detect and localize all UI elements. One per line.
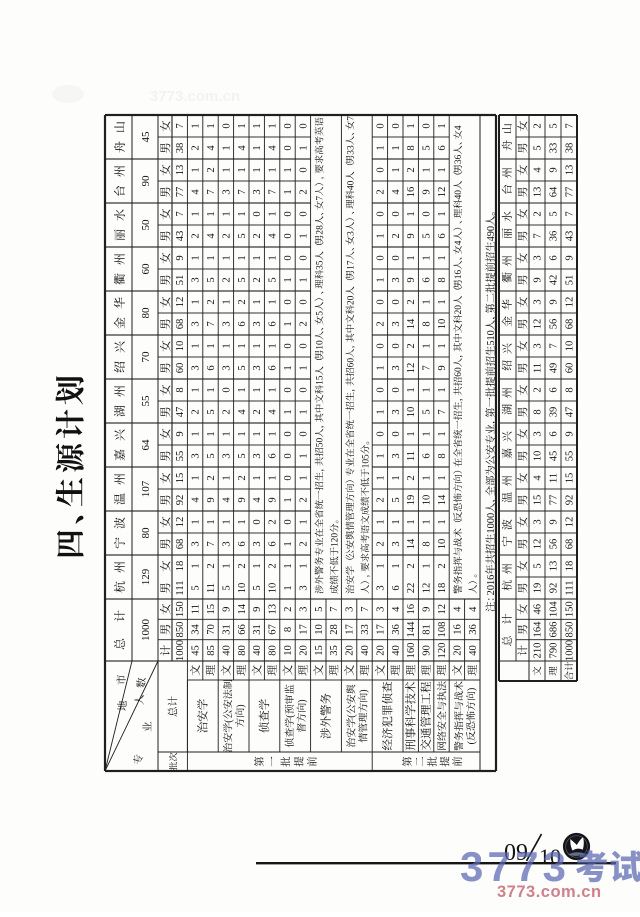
svg-text:1: 1 — [422, 255, 433, 260]
svg-text:111: 111 — [564, 580, 575, 595]
svg-text:9: 9 — [406, 233, 417, 238]
svg-text:1000: 1000 — [175, 640, 186, 661]
svg-text:144: 144 — [406, 621, 417, 638]
svg-text:3: 3 — [375, 607, 386, 612]
svg-text:2: 2 — [206, 475, 217, 480]
svg-text:9: 9 — [406, 277, 417, 282]
svg-text:4: 4 — [252, 497, 263, 503]
svg-text:9: 9 — [252, 607, 263, 612]
svg-text:60: 60 — [454, 367, 464, 377]
svg-text:9: 9 — [564, 255, 575, 260]
svg-text:2: 2 — [406, 299, 417, 304]
svg-text:1: 1 — [283, 409, 294, 414]
svg-text:77: 77 — [548, 495, 559, 506]
svg-text:1: 1 — [221, 255, 232, 260]
svg-text:1: 1 — [437, 167, 448, 172]
svg-text:33: 33 — [360, 624, 371, 635]
svg-text:92: 92 — [564, 495, 575, 506]
svg-text:10: 10 — [532, 451, 543, 462]
svg-text:0: 0 — [391, 123, 402, 128]
svg-text:3: 3 — [391, 277, 402, 282]
svg-text:1: 1 — [437, 475, 448, 480]
svg-text:6: 6 — [422, 277, 433, 282]
svg-text:1: 1 — [391, 563, 402, 568]
svg-text:7: 7 — [532, 233, 543, 238]
svg-text:5: 5 — [548, 211, 559, 216]
svg-text:36: 36 — [454, 154, 464, 164]
svg-text:1: 1 — [298, 475, 309, 480]
svg-text:22: 22 — [406, 583, 417, 594]
svg-text:1: 1 — [422, 299, 433, 304]
svg-text:4: 4 — [237, 409, 248, 415]
svg-text:5: 5 — [422, 409, 433, 414]
svg-text:28: 28 — [316, 225, 326, 235]
svg-text:1: 1 — [221, 211, 232, 216]
svg-text:50: 50 — [140, 219, 152, 231]
svg-text:55: 55 — [175, 451, 186, 462]
svg-text:47: 47 — [175, 407, 186, 418]
svg-text:14: 14 — [406, 538, 417, 549]
svg-text:3: 3 — [252, 453, 263, 458]
svg-text:80: 80 — [237, 645, 248, 656]
svg-text:1: 1 — [252, 475, 263, 480]
svg-text:77: 77 — [564, 187, 575, 198]
svg-text:0: 0 — [422, 123, 433, 128]
svg-text:7: 7 — [564, 123, 575, 128]
svg-text:2: 2 — [221, 277, 232, 282]
svg-text:3: 3 — [375, 585, 386, 590]
svg-text:1: 1 — [298, 277, 309, 282]
svg-text:2: 2 — [375, 189, 386, 194]
svg-text:11: 11 — [532, 363, 543, 373]
svg-text:0: 0 — [391, 255, 402, 260]
svg-text:1: 1 — [221, 299, 232, 304]
svg-text:1: 1 — [206, 123, 217, 128]
svg-text:3: 3 — [391, 365, 402, 370]
svg-text:7: 7 — [548, 343, 559, 348]
svg-text:3: 3 — [532, 299, 543, 304]
svg-text:20: 20 — [452, 645, 463, 656]
svg-text:16: 16 — [406, 187, 417, 198]
svg-text:1: 1 — [391, 167, 402, 172]
svg-text:68: 68 — [175, 539, 186, 550]
svg-text:4: 4 — [206, 145, 217, 151]
svg-text:7: 7 — [316, 196, 326, 201]
svg-text:11: 11 — [191, 604, 202, 614]
svg-text:1: 1 — [237, 519, 248, 524]
svg-text:9: 9 — [548, 167, 559, 172]
svg-text:): ) — [466, 688, 477, 691]
svg-text:2: 2 — [406, 343, 417, 348]
svg-text:8: 8 — [422, 541, 433, 546]
svg-text:2: 2 — [252, 233, 263, 238]
svg-text:15: 15 — [532, 495, 543, 506]
svg-text:45: 45 — [548, 451, 559, 462]
svg-text:9: 9 — [532, 277, 543, 282]
svg-text:5: 5 — [316, 311, 326, 316]
svg-text:8: 8 — [564, 387, 575, 392]
svg-text:6: 6 — [206, 365, 217, 370]
svg-text:1: 1 — [268, 255, 279, 260]
svg-text:10: 10 — [237, 583, 248, 594]
svg-text:12: 12 — [422, 583, 433, 594]
svg-text:0: 0 — [221, 387, 232, 392]
svg-text:1: 1 — [221, 431, 232, 436]
svg-text:1: 1 — [237, 431, 248, 436]
svg-text:2: 2 — [375, 321, 386, 326]
svg-text:1: 1 — [298, 563, 309, 568]
svg-text:9: 9 — [548, 299, 559, 304]
svg-text:2: 2 — [283, 607, 294, 612]
svg-text:7: 7 — [329, 607, 340, 612]
svg-text:13: 13 — [548, 561, 559, 572]
svg-text:80: 80 — [140, 527, 152, 539]
svg-text:1: 1 — [206, 255, 217, 260]
svg-text:1: 1 — [283, 541, 294, 546]
svg-text:5: 5 — [206, 453, 217, 458]
svg-text:92: 92 — [175, 495, 186, 506]
svg-text:60: 60 — [140, 263, 152, 275]
svg-text:4: 4 — [454, 240, 464, 245]
svg-text:8: 8 — [406, 145, 417, 150]
svg-text:0: 0 — [375, 299, 386, 304]
svg-text:3: 3 — [532, 343, 543, 348]
svg-text:43: 43 — [564, 231, 575, 242]
svg-text:4: 4 — [191, 189, 202, 195]
svg-text:1: 1 — [298, 519, 309, 524]
svg-text:0: 0 — [298, 167, 309, 172]
svg-text:0: 0 — [283, 453, 294, 458]
svg-text:1: 1 — [391, 475, 402, 480]
svg-text:2: 2 — [532, 123, 543, 128]
svg-text:9: 9 — [221, 607, 232, 612]
svg-text:1: 1 — [375, 475, 386, 480]
svg-text:8: 8 — [283, 627, 294, 632]
svg-text:3: 3 — [298, 607, 309, 612]
svg-text:120: 120 — [437, 643, 448, 659]
svg-text:9: 9 — [237, 497, 248, 502]
svg-text:8: 8 — [532, 409, 543, 414]
svg-text:1: 1 — [252, 387, 263, 392]
svg-text:3: 3 — [191, 453, 202, 458]
svg-text:1: 1 — [422, 475, 433, 480]
svg-text:3: 3 — [221, 321, 232, 326]
svg-text:14: 14 — [237, 603, 248, 614]
svg-text:107: 107 — [140, 480, 152, 497]
svg-text:3773.com.cn: 3773.com.cn — [497, 883, 602, 901]
svg-text:0: 0 — [283, 211, 294, 216]
svg-text:12: 12 — [175, 297, 186, 308]
svg-text:1: 1 — [221, 343, 232, 348]
svg-text:0: 0 — [422, 211, 433, 216]
svg-text:5: 5 — [191, 585, 202, 590]
svg-text:1: 1 — [206, 211, 217, 216]
svg-text:2: 2 — [252, 277, 263, 282]
svg-text:2: 2 — [375, 497, 386, 502]
svg-text:5: 5 — [252, 585, 263, 590]
svg-text:45: 45 — [191, 645, 202, 656]
svg-text:1: 1 — [191, 167, 202, 172]
svg-text:10: 10 — [437, 539, 448, 550]
svg-text:1: 1 — [221, 145, 232, 150]
svg-text:9: 9 — [175, 431, 186, 436]
svg-text:40: 40 — [391, 645, 402, 656]
svg-text:2: 2 — [221, 409, 232, 414]
svg-text:4: 4 — [191, 497, 202, 503]
svg-text:1000: 1000 — [564, 640, 575, 661]
svg-text:1: 1 — [237, 343, 248, 348]
svg-text:56: 56 — [548, 539, 559, 550]
svg-text:1: 1 — [237, 211, 248, 216]
svg-text:3: 3 — [391, 453, 402, 458]
svg-text:2: 2 — [206, 167, 217, 172]
svg-text:5: 5 — [314, 607, 325, 612]
svg-text:1: 1 — [375, 277, 386, 282]
svg-text:15: 15 — [175, 473, 186, 484]
svg-text:0: 0 — [283, 123, 294, 128]
svg-text:0: 0 — [283, 519, 294, 524]
svg-text:0: 0 — [375, 255, 386, 260]
svg-text:14: 14 — [437, 494, 448, 505]
svg-text:31: 31 — [221, 624, 232, 635]
svg-text:10: 10 — [422, 495, 433, 506]
svg-text:11: 11 — [206, 583, 217, 593]
svg-text:3: 3 — [252, 321, 263, 326]
svg-text:5: 5 — [237, 453, 248, 458]
svg-text:1: 1 — [252, 145, 263, 150]
svg-text:6: 6 — [548, 255, 559, 260]
svg-text:1: 1 — [406, 431, 417, 436]
svg-text:46: 46 — [532, 604, 543, 615]
svg-text:15: 15 — [316, 375, 326, 385]
svg-text:111: 111 — [175, 580, 186, 595]
svg-text:3: 3 — [221, 453, 232, 458]
svg-text:6: 6 — [548, 387, 559, 392]
svg-text:1: 1 — [391, 145, 402, 150]
svg-text:4: 4 — [268, 233, 279, 239]
svg-text:3: 3 — [532, 431, 543, 436]
svg-text:1: 1 — [375, 233, 386, 238]
svg-text:1: 1 — [406, 519, 417, 524]
svg-text:9: 9 — [437, 365, 448, 370]
svg-text:0: 0 — [283, 387, 294, 392]
svg-text:0: 0 — [298, 123, 309, 128]
svg-text:68: 68 — [175, 319, 186, 330]
svg-text:1: 1 — [191, 431, 202, 436]
svg-text:1: 1 — [375, 409, 386, 414]
svg-text:80: 80 — [268, 645, 279, 656]
svg-text:0: 0 — [283, 343, 294, 348]
svg-text:16: 16 — [452, 624, 463, 635]
svg-text:1: 1 — [268, 431, 279, 436]
svg-text:36: 36 — [548, 231, 559, 242]
svg-text:1: 1 — [252, 343, 263, 348]
svg-text:5: 5 — [221, 585, 232, 590]
svg-text:12: 12 — [532, 539, 543, 550]
svg-text:11: 11 — [406, 451, 417, 461]
svg-text:1: 1 — [283, 563, 294, 568]
svg-text:210: 210 — [532, 643, 543, 659]
svg-text:1: 1 — [283, 167, 294, 172]
svg-text:40: 40 — [252, 645, 263, 656]
svg-text:9: 9 — [422, 189, 433, 194]
svg-text:1: 1 — [283, 321, 294, 326]
svg-text:3: 3 — [252, 365, 263, 370]
svg-text:12: 12 — [564, 517, 575, 528]
svg-text:1: 1 — [206, 431, 217, 436]
svg-text:0: 0 — [375, 167, 386, 172]
svg-text:60: 60 — [175, 363, 186, 374]
svg-text:1: 1 — [191, 255, 202, 260]
svg-text:4: 4 — [391, 606, 402, 612]
svg-text:5: 5 — [206, 277, 217, 282]
svg-text:0: 0 — [375, 211, 386, 216]
svg-text:1: 1 — [406, 255, 417, 260]
svg-text:1: 1 — [298, 145, 309, 150]
svg-text:0: 0 — [283, 299, 294, 304]
svg-text:2: 2 — [268, 519, 279, 524]
svg-text:0: 0 — [283, 431, 294, 436]
svg-text:9: 9 — [175, 255, 186, 260]
svg-text:13: 13 — [532, 187, 543, 198]
svg-text:34: 34 — [191, 624, 202, 635]
svg-text:1: 1 — [298, 453, 309, 458]
svg-text:10: 10 — [283, 645, 294, 656]
svg-text:3: 3 — [345, 607, 356, 612]
svg-text:7: 7 — [206, 321, 217, 326]
svg-text:0: 0 — [283, 255, 294, 260]
svg-text:6: 6 — [268, 453, 279, 458]
svg-text:40: 40 — [454, 190, 464, 200]
svg-text:5: 5 — [237, 365, 248, 370]
svg-text:15: 15 — [206, 604, 217, 615]
svg-text:2: 2 — [437, 563, 448, 568]
svg-text:2: 2 — [391, 233, 402, 238]
svg-text:7: 7 — [206, 541, 217, 546]
svg-text:15: 15 — [314, 645, 325, 656]
svg-text:0: 0 — [283, 145, 294, 150]
svg-text:0: 0 — [375, 123, 386, 128]
svg-text:2: 2 — [532, 211, 543, 216]
svg-text:1: 1 — [298, 409, 309, 414]
svg-text:19: 19 — [406, 495, 417, 506]
svg-text:12: 12 — [564, 297, 575, 308]
svg-text:0: 0 — [298, 299, 309, 304]
svg-text:2: 2 — [298, 497, 309, 502]
svg-text:3: 3 — [191, 541, 202, 546]
svg-text:4: 4 — [532, 475, 543, 481]
svg-text:28: 28 — [329, 624, 340, 635]
svg-text:5: 5 — [268, 277, 279, 282]
svg-text:90: 90 — [422, 645, 433, 656]
svg-text:1: 1 — [237, 255, 248, 260]
svg-text:1: 1 — [298, 233, 309, 238]
svg-text:1: 1 — [375, 145, 386, 150]
svg-text:60: 60 — [346, 358, 356, 368]
svg-text:1: 1 — [237, 167, 248, 172]
svg-text:55: 55 — [140, 395, 152, 407]
svg-text:17: 17 — [345, 624, 356, 635]
svg-text:4: 4 — [532, 167, 543, 173]
svg-text:38: 38 — [564, 143, 575, 154]
svg-text:5: 5 — [391, 497, 402, 502]
svg-text:1: 1 — [437, 519, 448, 524]
svg-text:108: 108 — [437, 622, 448, 638]
svg-text:686: 686 — [548, 622, 559, 638]
svg-text:1: 1 — [268, 123, 279, 128]
svg-text:7: 7 — [175, 211, 186, 216]
svg-text:1: 1 — [437, 299, 448, 304]
svg-text:0: 0 — [252, 211, 263, 216]
svg-text:1: 1 — [191, 563, 202, 568]
svg-text:3: 3 — [346, 231, 356, 236]
svg-text:2: 2 — [237, 475, 248, 480]
svg-text:1: 1 — [252, 123, 263, 128]
svg-text:7: 7 — [360, 607, 371, 612]
svg-text:1: 1 — [437, 343, 448, 348]
svg-text:2: 2 — [191, 233, 202, 238]
svg-text:50: 50 — [316, 438, 326, 448]
svg-text:35: 35 — [316, 260, 326, 270]
svg-text:2: 2 — [268, 563, 279, 568]
svg-text:81: 81 — [422, 624, 433, 635]
svg-text:7: 7 — [175, 123, 186, 128]
svg-text:16: 16 — [406, 604, 417, 615]
svg-text:1: 1 — [406, 387, 417, 392]
svg-text:5: 5 — [206, 409, 217, 414]
svg-text:7: 7 — [206, 189, 217, 194]
svg-text:1: 1 — [422, 431, 433, 436]
svg-text:47: 47 — [564, 407, 575, 418]
svg-text:1: 1 — [283, 189, 294, 194]
svg-text:0: 0 — [298, 387, 309, 392]
svg-text:129: 129 — [140, 568, 152, 585]
svg-text:1: 1 — [283, 585, 294, 590]
svg-text:45: 45 — [140, 131, 152, 143]
svg-text:0: 0 — [375, 387, 386, 392]
svg-text:20: 20 — [298, 645, 309, 656]
svg-text:1: 1 — [422, 343, 433, 348]
svg-text:1: 1 — [283, 277, 294, 282]
svg-text:5: 5 — [237, 277, 248, 282]
svg-text:5: 5 — [422, 145, 433, 150]
svg-text:1: 1 — [437, 255, 448, 260]
svg-text:40: 40 — [468, 645, 479, 656]
svg-text:18: 18 — [175, 561, 186, 572]
svg-text:1: 1 — [298, 365, 309, 370]
svg-text:68: 68 — [564, 319, 575, 330]
svg-text:66: 66 — [237, 624, 248, 635]
svg-text:1: 1 — [191, 123, 202, 128]
svg-text:6: 6 — [268, 541, 279, 546]
svg-text:1: 1 — [221, 475, 232, 480]
svg-text:0: 0 — [298, 211, 309, 216]
svg-text:4: 4 — [221, 497, 232, 503]
svg-text:0: 0 — [391, 431, 402, 436]
svg-text:1: 1 — [375, 519, 386, 524]
svg-text:13: 13 — [268, 604, 279, 615]
svg-text:1: 1 — [268, 167, 279, 172]
svg-text:1: 1 — [437, 211, 448, 216]
svg-text:20: 20 — [345, 645, 356, 656]
svg-text:2: 2 — [221, 233, 232, 238]
svg-text:31: 31 — [252, 624, 263, 635]
svg-text:6: 6 — [437, 233, 448, 238]
svg-text:10: 10 — [406, 407, 417, 418]
svg-text:0: 0 — [391, 211, 402, 216]
svg-text:3773.com.cn: 3773.com.cn — [150, 88, 240, 105]
svg-text:38: 38 — [175, 143, 186, 154]
